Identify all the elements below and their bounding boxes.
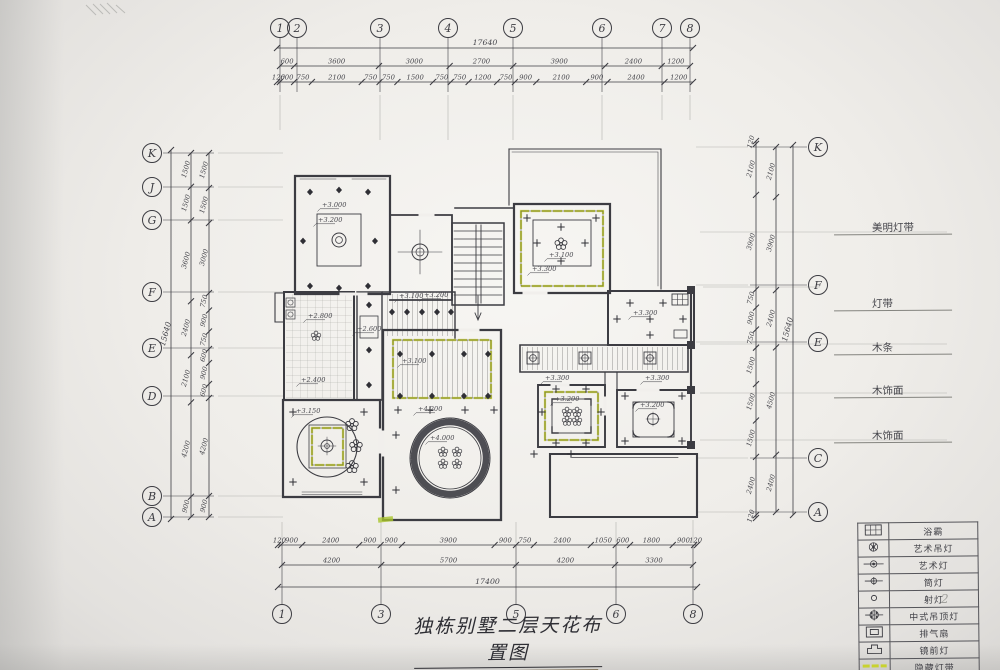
art-lamp-icon — [858, 557, 889, 574]
dimension-text: 750 — [746, 290, 757, 305]
dimension-text: 4200 — [322, 557, 341, 565]
level-value: +2.400 — [301, 376, 325, 384]
level-value: +3.000 — [322, 201, 346, 209]
legend-label: 艺术灯 — [889, 556, 978, 574]
grid-bubble: J — [143, 178, 162, 197]
dimension-text: 2100 — [745, 159, 758, 179]
level-mark: +3.200 — [551, 395, 580, 406]
dimension-text: 3900 — [551, 58, 569, 66]
dimension-text: 2400 — [745, 475, 758, 495]
grid-bubble-label: K — [813, 141, 823, 154]
legend-row: 射灯 — [858, 590, 978, 608]
hidden-light-strip-icon — [859, 659, 890, 670]
grid-bubble: C — [809, 449, 828, 468]
grid-bubble-label: E — [813, 336, 822, 349]
dimension-text: 3900 — [765, 233, 777, 252]
level-mark: +3.150 — [292, 407, 321, 418]
dimension-text: 900 — [363, 537, 377, 545]
dimension-text: 3600 — [180, 250, 192, 269]
dimension-text: 2100 — [552, 74, 571, 82]
dimension-text: 900 — [199, 365, 210, 380]
art-pendant-icon — [858, 540, 889, 557]
dimension-text: 2400 — [553, 537, 572, 545]
level-value: +4.000 — [430, 434, 454, 442]
dimension-text: 900 — [519, 74, 533, 82]
dimension-text: 750 — [297, 74, 311, 82]
dimension-text: 600 — [280, 74, 294, 82]
spotlight-icon — [858, 591, 889, 608]
grid-bubble-label: A — [147, 511, 156, 524]
legend-label: 中式吊顶灯 — [890, 607, 979, 625]
dimension-text: 750 — [364, 74, 378, 82]
legend-label: 隐藏灯带 — [890, 658, 979, 670]
ceiling-plan-svg: 1764060036003000270039002400120012060075… — [0, 0, 1000, 670]
legend-label: 艺术吊灯 — [889, 539, 978, 557]
grid-bubble-label: 6 — [599, 22, 606, 35]
dimension-text: 3300 — [645, 557, 663, 565]
grid-bubble-label: F — [813, 279, 822, 292]
dimension-text: 3900 — [745, 232, 757, 251]
dimension-text: 5700 — [440, 557, 458, 565]
dimension-text: 1500 — [745, 428, 757, 447]
mirror-lamp-icon — [859, 642, 890, 659]
dimension-text: 1500 — [407, 74, 425, 82]
dimension-text: 3000 — [198, 247, 210, 266]
grid-bubble: E — [143, 339, 162, 358]
level-mark: +3.100 — [545, 251, 574, 262]
dimension-text: 2400 — [180, 318, 193, 338]
dimension-text: 3000 — [406, 58, 424, 66]
level-value: +3.100 — [402, 357, 426, 365]
grid-bubble-label: F — [147, 286, 156, 299]
dimension-text: 1200 — [667, 58, 685, 66]
grid-bubble: B — [143, 487, 162, 506]
material-label: 木条 — [834, 340, 952, 356]
dimension-text: 600 — [616, 537, 630, 545]
grid-bubble: K — [143, 144, 162, 163]
dimension-text: 1500 — [180, 193, 192, 212]
corridor-cells — [360, 302, 378, 389]
grid-bubble-label: D — [147, 390, 157, 403]
dimension-text: 2700 — [472, 58, 491, 66]
dimension-text: 1200 — [474, 74, 492, 82]
level-value: +3.100 — [399, 292, 423, 300]
level-value: +2.600 — [357, 325, 381, 333]
dimension-text: 1200 — [670, 74, 688, 82]
axes-and-dimensions: 1764060036003000270039002400120012060075… — [143, 19, 828, 624]
dimension-text: 2400 — [626, 74, 645, 82]
level-mark: +4.000 — [426, 434, 455, 445]
dimension-text: 2100 — [180, 368, 193, 388]
grid-bubble-label: J — [148, 181, 155, 194]
dimension-text: 900 — [285, 537, 299, 545]
grid-bubble-label: 5 — [510, 22, 517, 35]
dimension-text: 1500 — [180, 159, 192, 178]
green-mark — [378, 516, 393, 523]
grid-bubble-label: B — [147, 490, 156, 503]
dimension-text: 750 — [199, 293, 210, 308]
grid-bubble-label: 3 — [378, 608, 385, 621]
dimension-text: 750 — [453, 74, 467, 82]
legend-row: 隐藏灯带 — [859, 658, 979, 670]
dimension-text: 1500 — [745, 392, 757, 411]
grid-bubble: 8 — [681, 19, 700, 38]
dimension-text: 900 — [385, 537, 399, 545]
grid-bubble: A — [809, 503, 828, 522]
grid-bubble: 3 — [372, 605, 391, 624]
level-value: +3.150 — [296, 407, 320, 415]
grid-bubble: A — [143, 508, 162, 527]
title-block: 独栋别墅二层天花布置图 SC/ 1:100 — [408, 610, 609, 670]
level-mark: +3.200 — [636, 401, 665, 412]
level-value: +4.200 — [418, 405, 442, 413]
dimension-text: 750 — [746, 330, 757, 345]
dimension-text: 900 — [746, 310, 757, 325]
material-label: 灯带 — [834, 296, 952, 312]
grid-bubble: 4 — [439, 19, 458, 38]
dimension-text: 600 — [281, 58, 295, 66]
grid-bubble: F — [143, 283, 162, 302]
grid-bubble: 3 — [371, 19, 390, 38]
dimension-text: 2100 — [765, 161, 778, 181]
downlight-icon — [858, 574, 889, 591]
grid-bubble-label: C — [814, 452, 823, 465]
exhaust-fan-icon — [859, 625, 890, 642]
dimension-text: 4500 — [765, 391, 778, 411]
grid-bubble-label: G — [148, 214, 157, 227]
material-label: 木饰面 — [834, 383, 952, 399]
dimension-text: 750 — [435, 74, 449, 82]
grid-bubble: 6 — [607, 605, 626, 624]
legend-label: 排气扇 — [890, 624, 979, 642]
dimension-text: 1050 — [595, 537, 613, 545]
dimension-text: 750 — [382, 74, 396, 82]
grid-bubble: K — [809, 138, 828, 157]
level-value: +3.100 — [549, 251, 573, 259]
grid-bubble-label: E — [147, 342, 156, 355]
dimension-text: 17640 — [473, 38, 498, 47]
level-value: +3.300 — [532, 265, 556, 273]
level-mark: +3.300 — [541, 374, 570, 385]
material-label: 木饰面 — [834, 428, 952, 444]
grid-bubble: 5 — [504, 19, 523, 38]
grid-bubble: 2 — [288, 19, 307, 38]
legend-table: 浴霸艺术吊灯艺术灯筒灯射灯中式吊顶灯排气扇镜前灯隐藏灯带 — [857, 521, 980, 670]
legend-row: 中式吊顶灯 — [859, 607, 979, 625]
legend-row: 艺术吊灯 — [858, 539, 978, 557]
grid-bubble: 8 — [684, 605, 703, 624]
drawing-title: 独栋别墅二层天花布置图 — [408, 610, 608, 666]
dimension-text: 3900 — [440, 537, 458, 545]
grid-bubble-label: A — [813, 506, 822, 519]
dimension-text: 4200 — [198, 436, 211, 456]
grid-bubble: F — [809, 276, 828, 295]
grid-bubble: 6 — [593, 19, 612, 38]
dimension-text: 2400 — [765, 473, 778, 493]
level-value: +3.200 — [640, 401, 664, 409]
dimension-text: 17400 — [475, 577, 500, 586]
legend-label: 筒灯 — [889, 573, 978, 591]
grid-bubble-label: K — [147, 147, 157, 160]
grid-bubble-label: 8 — [687, 22, 694, 35]
grid-bubble-label: 3 — [377, 22, 384, 35]
yuba-icon — [858, 523, 889, 540]
dimension-text: 900 — [199, 313, 210, 328]
grid-bubble: D — [143, 387, 162, 406]
dimension-text: 4200 — [556, 557, 575, 565]
dimension-text: 900 — [199, 498, 210, 513]
grid-bubble: E — [809, 333, 828, 352]
level-value: +3.300 — [633, 309, 657, 317]
grid-bubble: 1 — [271, 19, 290, 38]
level-value: +3.300 — [645, 374, 669, 382]
grid-bubble-label: 4 — [444, 22, 452, 35]
grid-bubble: G — [143, 211, 162, 230]
dimension-text: 750 — [518, 537, 532, 545]
level-value: +3.200 — [555, 395, 579, 403]
dimension-text: 750 — [199, 332, 210, 347]
grid-bubble-label: 6 — [613, 608, 620, 621]
level-mark: +3.200 — [314, 216, 343, 227]
grid-bubble-label: 1 — [279, 608, 286, 621]
pencil-hatch-marks — [86, 3, 125, 15]
hall-ceiling-lamp — [398, 230, 442, 274]
level-mark: +3.300 — [629, 309, 658, 320]
legend-row: 艺术灯 — [858, 556, 978, 574]
circle-room-ceiling — [290, 409, 367, 485]
legend-row: 镜前灯 — [859, 641, 979, 659]
legend-label: 浴霸 — [889, 522, 978, 540]
level-value: +3.200 — [424, 291, 448, 299]
level-mark: +4.200 — [414, 405, 443, 416]
dimension-text: 900 — [499, 537, 513, 545]
dimension-text: 3600 — [328, 58, 346, 66]
level-mark: +3.000 — [318, 201, 347, 212]
grid-bubble: 7 — [653, 19, 672, 38]
grid-bubble-label: 8 — [690, 608, 697, 621]
dimension-text: 1500 — [198, 160, 210, 179]
legend-row: 浴霸 — [858, 522, 978, 540]
dimension-text: 900 — [181, 498, 192, 513]
grid-bubble-label: 1 — [277, 22, 284, 35]
level-value: +3.300 — [545, 374, 569, 382]
drawing-sheet: 1764060036003000270039002400120012060075… — [0, 0, 1000, 670]
dimension-text: 2400 — [321, 537, 340, 545]
dimension-text: 120 — [689, 537, 703, 545]
legend-row: 排气扇 — [859, 624, 979, 642]
dimension-text: 1800 — [643, 537, 661, 545]
dimension-text: 4200 — [180, 439, 193, 459]
level-mark: +3.300 — [528, 265, 557, 276]
dimension-text: 2100 — [327, 74, 346, 82]
legend-label: 射灯 — [889, 590, 978, 608]
grid-bubble-label: 7 — [659, 22, 666, 35]
legend-row: 筒灯 — [858, 573, 978, 591]
dimension-text: 750 — [500, 74, 514, 82]
dimension-text: 1500 — [198, 195, 210, 214]
dimension-text: 2400 — [765, 308, 778, 328]
level-mark: +3.300 — [641, 374, 670, 385]
dimension-text: 120 — [746, 508, 757, 523]
dimension-text: 2400 — [624, 58, 643, 66]
level-value: +2.800 — [308, 312, 332, 320]
dimension-text: 1500 — [745, 355, 757, 374]
legend-label: 镜前灯 — [890, 641, 979, 659]
material-label: 美明灯带 — [834, 220, 952, 236]
pencil-note: 2 — [941, 592, 949, 606]
chinese-ceiling-lamp-icon — [859, 608, 890, 625]
grid-bubble: 1 — [273, 605, 292, 624]
level-value: +3.200 — [318, 216, 342, 224]
grid-bubble-label: 2 — [293, 22, 301, 35]
